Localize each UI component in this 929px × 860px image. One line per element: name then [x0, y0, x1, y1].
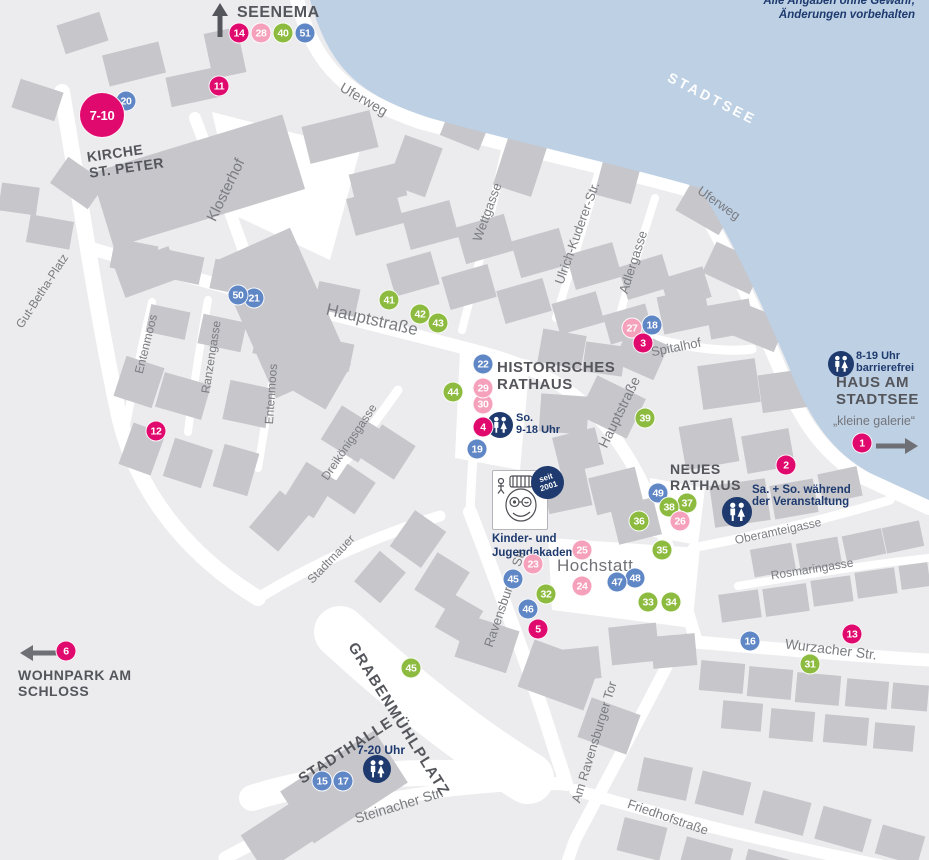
- marker-5-magenta[interactable]: 5: [528, 619, 549, 640]
- marker-24-pink[interactable]: 24: [572, 576, 593, 597]
- marker-46-blue[interactable]: 46: [518, 599, 539, 620]
- marker-50-blue[interactable]: 50: [228, 285, 249, 306]
- marker-13-magenta[interactable]: 13: [842, 624, 863, 645]
- building-footprint: [747, 666, 793, 700]
- building-footprint: [0, 182, 40, 215]
- building-footprint: [721, 700, 763, 731]
- marker-48-blue[interactable]: 48: [625, 568, 646, 589]
- marker-2-magenta[interactable]: 2: [776, 455, 797, 476]
- disclaimer-line2: Änderungen vorbehalten: [779, 9, 915, 21]
- marker-22-blue[interactable]: 22: [473, 354, 494, 375]
- marker-34-green[interactable]: 34: [661, 592, 682, 613]
- hours-haus-am-stadtsee: 8-19 Uhrbarrierefrei: [856, 351, 914, 375]
- marker-41-green[interactable]: 41: [379, 290, 400, 311]
- haus-am-stadtsee-direction-arrow: [874, 433, 918, 459]
- marker-4-magenta[interactable]: 4: [473, 417, 494, 438]
- haus-am-stadtsee-label: HAUS AMSTADTSEE: [836, 375, 919, 409]
- hours-historisches-rathaus: So.9-18 Uhr: [516, 413, 560, 437]
- marker-35-green[interactable]: 35: [652, 540, 673, 561]
- basemap-graphic: [0, 0, 929, 860]
- building-footprint: [795, 672, 841, 706]
- marker-15-blue[interactable]: 15: [312, 771, 333, 792]
- neues-rathaus-label: NEUESRATHAUS: [670, 462, 741, 493]
- marker-25-pink[interactable]: 25: [572, 540, 593, 561]
- disclaimer-note: Alle Angaben ohne Gewähr, Änderungen vor…: [763, 0, 915, 23]
- marker-1-magenta[interactable]: 1: [852, 433, 873, 454]
- marker-29-pink[interactable]: 29: [473, 378, 494, 399]
- building-footprint: [891, 682, 929, 711]
- seenema-label: SEENEMA: [237, 4, 320, 22]
- building-footprint: [697, 358, 761, 410]
- historisches-rathaus-label: HISTORISCHESRATHAUS: [497, 360, 615, 394]
- marker-39-green[interactable]: 39: [635, 408, 656, 429]
- building-footprint: [898, 562, 929, 590]
- marker-26-pink[interactable]: 26: [670, 511, 691, 532]
- marker-23-pink[interactable]: 23: [523, 554, 544, 575]
- marker-40-green[interactable]: 40: [273, 23, 294, 44]
- marker-6-magenta[interactable]: 6: [56, 641, 77, 662]
- marker-28-pink[interactable]: 28: [251, 23, 272, 44]
- building-footprint: [845, 678, 889, 710]
- wohnpark-am-schloss-label: WOHNPARK AMSCHLOSS: [18, 668, 132, 699]
- building-footprint: [769, 708, 815, 742]
- building-footprint: [651, 633, 698, 669]
- marker-3-magenta[interactable]: 3: [633, 333, 654, 354]
- marker-43-green[interactable]: 43: [428, 313, 449, 334]
- wc-neues-rathaus-icon: [722, 497, 752, 527]
- marker-51-blue[interactable]: 51: [295, 23, 316, 44]
- disclaimer-line1: Alle Angaben ohne Gewähr,: [763, 0, 915, 7]
- marker-12-magenta[interactable]: 12: [146, 421, 167, 442]
- marker-19-blue[interactable]: 19: [467, 439, 488, 460]
- building-footprint: [810, 575, 853, 606]
- building-footprint: [873, 722, 915, 751]
- wc-stadthalle-icon: [363, 755, 391, 783]
- marker-31-green[interactable]: 31: [800, 654, 821, 675]
- kleine-galerie-label: „kleine galerie“: [833, 415, 915, 429]
- marker-44-green[interactable]: 44: [443, 382, 464, 403]
- town-festival-map: UferwegUferwegKlosterhofWettgasseUlrich-…: [0, 0, 929, 860]
- marker-45-green[interactable]: 45: [401, 658, 422, 679]
- marker-14-magenta[interactable]: 14: [229, 23, 250, 44]
- marker-11-magenta[interactable]: 11: [209, 76, 230, 97]
- building-footprint: [699, 660, 745, 694]
- marker-32-green[interactable]: 32: [536, 584, 557, 605]
- marker-45-blue[interactable]: 45: [503, 569, 524, 590]
- marker-36-green[interactable]: 36: [629, 511, 650, 532]
- marker-7-10-magenta[interactable]: 7-10: [79, 92, 125, 138]
- building-footprint: [854, 567, 897, 598]
- hours-neues-rathaus: Sa. + So. währendder Veranstaltung: [752, 484, 851, 509]
- wc-haus-am-stadtsee-icon: [828, 351, 854, 377]
- marker-47-blue[interactable]: 47: [607, 572, 628, 593]
- building-footprint: [718, 589, 762, 622]
- marker-33-green[interactable]: 33: [638, 592, 659, 613]
- building-footprint: [823, 714, 869, 746]
- marker-16-blue[interactable]: 16: [740, 631, 761, 652]
- marker-17-blue[interactable]: 17: [333, 771, 354, 792]
